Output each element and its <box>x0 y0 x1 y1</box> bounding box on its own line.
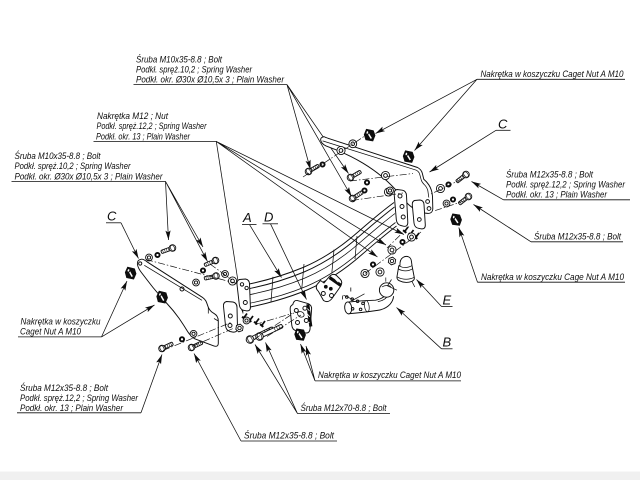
svg-text:Śruba M10x35-8.8 ; Bolt: Śruba M10x35-8.8 ; Bolt <box>15 150 101 161</box>
svg-text:B: B <box>443 335 452 350</box>
svg-text:Śruba M12x35-8.8 ; Bolt: Śruba M12x35-8.8 ; Bolt <box>20 382 109 393</box>
svg-text:D: D <box>264 210 273 225</box>
svg-text:Podkł. okr. 13 ; Plain Washer: Podkł. okr. 13 ; Plain Washer <box>506 190 608 200</box>
svg-text:Nakrętka w koszyczku Caget Nut: Nakrętka w koszyczku Caget Nut A M10 <box>318 370 461 380</box>
svg-text:Śruba M12x35-8.8 ; Bolt: Śruba M12x35-8.8 ; Bolt <box>534 231 621 242</box>
svg-text:Podkł. spręż.10,2 ; Spring Was: Podkł. spręż.10,2 ; Spring Washer <box>136 65 253 75</box>
svg-text:Nakrętka w koszyczku Cage Nut: Nakrętka w koszyczku Cage Nut A M10 <box>481 272 624 282</box>
svg-text:Podkł. okr. Ø30x Ø10,5x 3 ; P: Podkł. okr. Ø30x Ø10,5x 3 ; Plain Washer <box>136 75 285 85</box>
svg-text:Podkł. okr. 13 ; Plain Washer: Podkł. okr. 13 ; Plain Washer <box>96 131 191 141</box>
svg-text:Śruba M12x70-8.8 ; Bolt: Śruba M12x70-8.8 ; Bolt <box>301 402 387 413</box>
svg-text:Nakrętka M12 ; Nut: Nakrętka M12 ; Nut <box>97 111 169 121</box>
svg-text:Podkł. okr. 13 ; Plain Washer: Podkł. okr. 13 ; Plain Washer <box>20 403 124 413</box>
svg-text:Podkł. spręż.10,2 ; Spring Was: Podkł. spręż.10,2 ; Spring Washer <box>15 161 132 171</box>
svg-text:Śruba M12x35-8.8 ; Bolt: Śruba M12x35-8.8 ; Bolt <box>506 169 593 180</box>
svg-text:Caget Nut A M10: Caget Nut A M10 <box>20 327 81 337</box>
svg-text:Nakrętka w koszyczku Caget Nut: Nakrętka w koszyczku Caget Nut A M10 <box>481 69 624 79</box>
svg-text:Podkł. okr. Ø30x Ø10,5x 3 ; P: Podkł. okr. Ø30x Ø10,5x 3 ; Plain Washer <box>15 171 164 181</box>
svg-text:Nakrętka w koszyczku: Nakrętka w koszyczku <box>21 317 101 327</box>
svg-text:Podkł. spręż.12,2 ; Spring Was: Podkł. spręż.12,2 ; Spring Washer <box>20 393 139 403</box>
svg-text:Podkł. spręż.12,2 ; Spring Wa: Podkł. spręż.12,2 ; Spring Washer <box>506 180 626 190</box>
svg-text:C: C <box>107 209 117 224</box>
svg-text:E: E <box>443 292 452 307</box>
svg-text:Śruba M12x35-8.8 ; Bolt: Śruba M12x35-8.8 ; Bolt <box>244 430 335 441</box>
svg-text:C: C <box>498 117 508 132</box>
svg-text:A: A <box>242 210 252 225</box>
svg-text:Podkł. spręż.12,2 ; Spring Was: Podkł. spręż.12,2 ; Spring Washer <box>97 121 208 131</box>
svg-text:Śruba M10x35-8.8 ; Bolt: Śruba M10x35-8.8 ; Bolt <box>136 53 222 64</box>
